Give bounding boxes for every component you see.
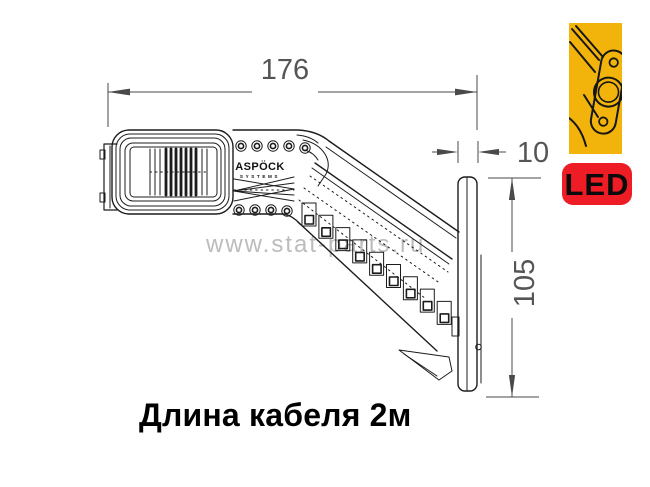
led-windows bbox=[302, 203, 459, 336]
lamp-elbow bbox=[297, 135, 328, 186]
lamp-drawing: ASPÖCK SYSTEMS bbox=[100, 130, 481, 391]
mount-orientation-icon bbox=[569, 23, 630, 154]
arm-foot-bracket bbox=[399, 350, 452, 380]
dimension-thickness: 10 bbox=[432, 137, 549, 169]
body-dots-top bbox=[236, 141, 310, 153]
caption-cable-length: Длина кабеля 2м bbox=[139, 397, 412, 434]
dimension-width-label: 176 bbox=[261, 54, 309, 86]
brand-name: ASPÖCK bbox=[235, 160, 284, 173]
mounting-plate bbox=[458, 177, 481, 391]
dimension-height: 105 bbox=[486, 178, 541, 397]
lamp-lens-ribs bbox=[150, 149, 207, 195]
technical-drawing-page: www.stat-parts.ru 176 10 105 bbox=[0, 0, 650, 487]
lamp-clip-bracket bbox=[100, 144, 117, 210]
brand-logo: ASPÖCK SYSTEMS bbox=[235, 160, 284, 179]
dimension-thickness-label: 10 bbox=[517, 137, 549, 169]
reflector-ray-pattern bbox=[234, 177, 294, 201]
watermark: www.stat-parts.ru bbox=[205, 231, 425, 258]
dimension-width: 176 bbox=[108, 54, 477, 130]
dimension-height-label: 105 bbox=[509, 259, 541, 307]
led-badge: LED bbox=[562, 163, 632, 205]
brand-subtitle: SYSTEMS bbox=[240, 174, 280, 179]
led-badge-label: LED bbox=[565, 167, 630, 202]
